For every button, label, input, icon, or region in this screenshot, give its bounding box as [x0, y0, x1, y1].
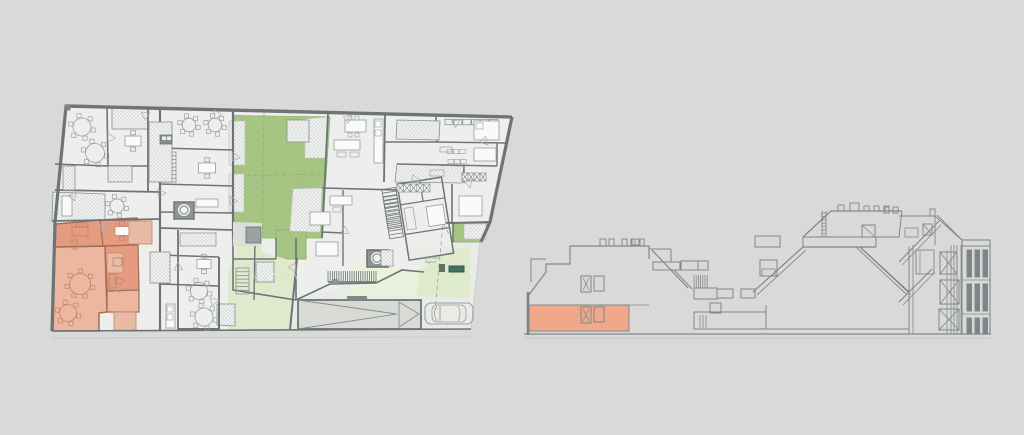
svg-text:begrünt: begrünt: [425, 260, 436, 264]
